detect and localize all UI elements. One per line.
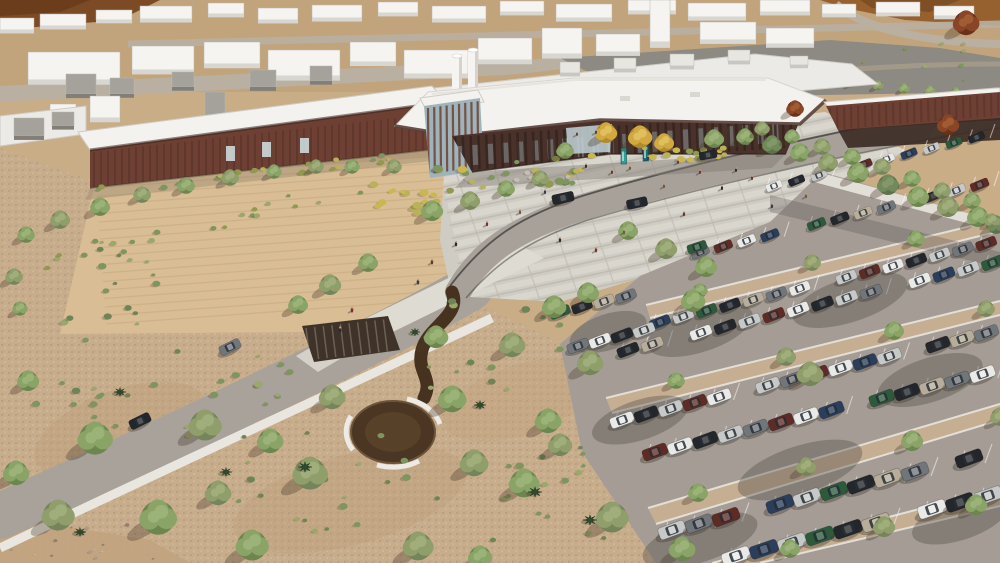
facade-panels [844, 107, 845, 129]
building-face [650, 42, 670, 48]
shrub [582, 464, 586, 467]
tree-highlight [801, 463, 807, 469]
building-block [478, 38, 532, 60]
tree-highlight [693, 489, 699, 495]
tree-highlight [466, 458, 475, 467]
shrub [102, 544, 105, 546]
shrub [923, 64, 928, 68]
rendering-viewport [0, 0, 1000, 563]
shrub [343, 496, 347, 499]
colonnade-columns [681, 121, 682, 155]
shrub [721, 152, 727, 156]
shrub [374, 203, 381, 208]
building-face [90, 118, 120, 122]
building-block [596, 34, 640, 52]
tree-highlight [390, 164, 395, 169]
building-face [312, 18, 362, 22]
shrub [263, 402, 268, 406]
colonnade-columns [525, 132, 526, 166]
circle-inner [365, 412, 421, 452]
tree-highlight [553, 441, 561, 449]
tree-highlight [363, 259, 369, 265]
shrub [506, 464, 512, 468]
person-head [629, 165, 631, 167]
tree-highlight [878, 523, 885, 530]
shrub [100, 241, 104, 244]
tree-highlight [758, 126, 763, 131]
shrub [125, 523, 129, 526]
shrub [150, 382, 158, 388]
shrub [402, 474, 411, 481]
tree-highlight [912, 193, 919, 200]
shrub [236, 499, 241, 503]
tree-highlight [348, 164, 353, 169]
facade-panels [872, 104, 873, 126]
tree-highlight [660, 245, 667, 252]
building-face [140, 19, 192, 23]
shrub [133, 311, 138, 315]
shrub [536, 511, 541, 515]
tree-highlight [817, 144, 823, 150]
shrub [124, 305, 131, 310]
shrub [378, 160, 385, 165]
tree-highlight [55, 216, 61, 222]
shrub [145, 260, 150, 263]
tree-highlight [9, 274, 15, 280]
shrub [160, 185, 167, 191]
shrub [92, 239, 98, 244]
building-block [310, 66, 332, 81]
colonnade-columns [502, 134, 503, 168]
building-block [312, 5, 362, 18]
building-face [172, 87, 194, 91]
shrub [358, 191, 363, 195]
shrub [401, 458, 409, 464]
shrub [963, 79, 967, 82]
tree-highlight [16, 306, 21, 311]
tree-highlight [49, 510, 60, 521]
tree-highlight [516, 478, 526, 488]
tree-highlight [937, 188, 943, 194]
building-face [258, 20, 298, 23]
shrub [294, 517, 300, 521]
person-head [519, 209, 521, 211]
shrub [59, 381, 65, 385]
facade-panels [956, 97, 957, 119]
shrub [554, 178, 564, 185]
agave-plant [298, 462, 312, 473]
tree-highlight [501, 186, 507, 192]
shrub [247, 476, 255, 482]
vent-side [475, 50, 478, 88]
shrub [413, 202, 422, 209]
tree-highlight [981, 306, 987, 312]
car-roof-highlight [706, 152, 711, 157]
building-face [96, 20, 132, 23]
tree-highlight [225, 175, 231, 181]
shrub [686, 149, 694, 155]
shrub [488, 175, 494, 180]
roof-equipment [690, 92, 700, 97]
vent-side [459, 56, 462, 90]
shrub [556, 346, 564, 352]
tree-highlight [137, 192, 143, 198]
building-face [560, 73, 580, 76]
tree-highlight [196, 420, 207, 431]
building-block [140, 6, 192, 19]
shrub [81, 253, 88, 258]
tree-highlight [823, 159, 829, 165]
facade-panels [865, 105, 866, 127]
person-head [699, 169, 701, 171]
facade-panels [837, 107, 838, 129]
tree-highlight [429, 333, 437, 341]
building-block [14, 118, 44, 136]
building-face [876, 13, 920, 16]
tree-highlight [901, 87, 905, 91]
colonnade-columns [478, 135, 479, 169]
building-face [790, 65, 808, 68]
building-face [766, 44, 814, 48]
building-face [40, 26, 86, 29]
tree-highlight [465, 197, 471, 203]
shrub [252, 207, 257, 211]
building-block [96, 10, 132, 20]
person-head [623, 229, 625, 231]
shrub [66, 315, 73, 320]
building-block [52, 112, 74, 126]
building-block [650, 0, 670, 42]
shrub [175, 349, 181, 353]
tree-highlight [633, 133, 641, 141]
facade-panels [963, 97, 964, 119]
building-face [14, 136, 44, 140]
shrub [371, 158, 376, 162]
person-head [417, 279, 419, 281]
tree-highlight [473, 553, 481, 561]
facade-panels [900, 102, 901, 124]
shrub [514, 178, 520, 182]
shrub [92, 415, 98, 419]
shrub [333, 158, 339, 162]
building-face [478, 60, 532, 64]
building-face [596, 52, 640, 56]
building-face [310, 81, 332, 85]
building-block [542, 28, 582, 54]
tree-highlight [942, 203, 949, 210]
building-face [0, 30, 34, 33]
shrub [254, 381, 263, 387]
banner-graphic [622, 151, 624, 161]
person-head [663, 183, 665, 185]
building-face [378, 13, 418, 16]
tree-highlight [988, 218, 993, 223]
shrub [541, 482, 548, 487]
facade-panels [879, 104, 880, 126]
shrub [502, 171, 509, 177]
shrub [242, 435, 247, 439]
building-block [110, 78, 134, 94]
tree-highlight [95, 203, 101, 209]
shrub [152, 558, 154, 560]
facade-panels [984, 95, 985, 117]
building-block [790, 56, 808, 65]
facade-panels [991, 94, 992, 116]
shrub [588, 153, 596, 159]
tree-highlight [312, 164, 317, 169]
tree-highlight [22, 377, 29, 384]
architectural-aerial-rendering [0, 0, 1000, 563]
tree-highlight [505, 340, 513, 348]
shrub [469, 179, 476, 184]
shrub [557, 322, 564, 327]
building-face [500, 12, 544, 15]
shrub [940, 42, 944, 45]
person-head [351, 306, 353, 308]
tree-highlight [583, 358, 591, 366]
shrub [377, 433, 384, 438]
wing-windows [300, 138, 309, 153]
tree-highlight [927, 89, 931, 93]
shrub [427, 365, 431, 368]
agave-plant [74, 528, 86, 537]
tree-highlight [325, 392, 333, 400]
circle-inner [365, 412, 421, 452]
shrub [720, 146, 727, 151]
shrub [305, 431, 310, 435]
colonnade-columns [486, 135, 487, 169]
shrub [121, 249, 127, 254]
tree-highlight [959, 18, 967, 26]
person-head [721, 185, 723, 187]
scene-root [0, 0, 1000, 563]
shrub [90, 401, 98, 407]
facade-panels [928, 100, 929, 122]
colonnade-columns [494, 134, 495, 168]
shrub [430, 192, 437, 197]
shrub [663, 152, 671, 158]
shrub [251, 168, 258, 173]
tree-highlight [942, 121, 949, 128]
colonnade-columns [471, 136, 472, 170]
shrub [10, 549, 13, 551]
shrub [354, 522, 361, 527]
shrub [210, 392, 218, 398]
building-face [614, 69, 636, 72]
shrub [97, 247, 104, 252]
building-block [66, 74, 96, 94]
glass-mullions [440, 106, 441, 172]
shrub [96, 394, 103, 399]
shrub [464, 177, 469, 181]
tree-highlight [882, 181, 889, 188]
shrub [524, 171, 530, 175]
shrub [488, 379, 496, 385]
shrub [488, 364, 496, 370]
roof-equipment [620, 96, 630, 101]
facade-panels [886, 103, 887, 125]
tree-highlight [686, 297, 694, 305]
shrub [32, 401, 40, 407]
building-block [560, 62, 580, 73]
shrub [286, 194, 290, 197]
shrub [335, 165, 340, 169]
tree-highlight [181, 183, 187, 189]
building-block [250, 70, 276, 87]
tree-highlight [293, 301, 299, 307]
shrub [545, 514, 551, 518]
building-face [700, 40, 756, 44]
wing-windows [262, 142, 271, 157]
building-block [204, 42, 260, 64]
wing-windows [226, 146, 235, 161]
shrub [254, 213, 260, 218]
shrub [293, 204, 298, 208]
shrub [98, 263, 106, 269]
shrub [100, 551, 103, 553]
person-head [683, 211, 685, 213]
building-block [378, 2, 418, 13]
tree-highlight [675, 544, 683, 552]
tree-highlight [781, 353, 787, 359]
tree-highlight [263, 436, 271, 444]
shrub [458, 166, 468, 173]
shrub [385, 480, 390, 484]
shrub [103, 288, 110, 293]
building-face [204, 64, 260, 68]
shrub [54, 539, 58, 542]
shrub [151, 273, 155, 276]
tree-highlight [148, 511, 160, 523]
storefront-glass [505, 143, 506, 163]
tree-highlight [877, 164, 883, 170]
person-head [611, 169, 613, 171]
colonnade-columns [541, 131, 542, 165]
facade-panels [893, 103, 894, 125]
person-head [647, 155, 649, 157]
shrub [576, 470, 583, 475]
shrub [240, 213, 246, 217]
tree-highlight [603, 512, 614, 523]
facade-panels [970, 96, 971, 118]
facade-panels [851, 106, 852, 128]
tree-highlight [788, 134, 793, 139]
agave-plant [474, 401, 486, 410]
tree-highlight [324, 281, 331, 288]
shrub [687, 157, 694, 162]
building-face [822, 14, 856, 17]
building-block [258, 8, 298, 20]
shrub [480, 185, 486, 189]
building-block [0, 18, 34, 30]
building-block [90, 96, 120, 118]
person-head [735, 167, 737, 169]
shrub [316, 201, 321, 205]
shrub [561, 478, 569, 484]
tree-highlight [767, 141, 773, 147]
building-face [250, 87, 276, 91]
shrub [56, 253, 61, 257]
person-head [431, 259, 433, 261]
shrub [154, 230, 161, 235]
shrub [278, 362, 285, 367]
shrub [862, 61, 865, 64]
shrub [515, 463, 524, 470]
building-block [688, 3, 746, 17]
tree-highlight [785, 545, 791, 551]
shrub [72, 388, 81, 394]
shrub [959, 64, 964, 68]
storefront-glass [475, 145, 476, 165]
facade-panels [907, 101, 908, 123]
tree-highlight [243, 540, 254, 551]
tree-highlight [560, 148, 566, 154]
shrub [50, 555, 53, 557]
glass-mullions [434, 107, 435, 173]
tree-highlight [852, 169, 859, 176]
shrub [379, 153, 385, 158]
shrub [504, 387, 509, 391]
shrub [569, 181, 575, 186]
glass-mullions [447, 105, 448, 171]
shrub [419, 189, 428, 196]
shrub [82, 338, 88, 343]
shrub [601, 536, 606, 540]
shrub [113, 282, 117, 285]
facade-panels [935, 99, 936, 121]
agave-plant [220, 468, 232, 477]
person-head [805, 193, 807, 195]
building-block [876, 2, 920, 13]
shrub [356, 462, 361, 466]
shrub [961, 49, 966, 53]
tree-highlight [211, 488, 219, 496]
tree-highlight [582, 289, 589, 296]
building-block [208, 3, 244, 14]
person-head [585, 163, 587, 165]
shrub [148, 238, 155, 243]
shrub [125, 393, 130, 397]
building-block [614, 58, 636, 69]
shrub [94, 557, 98, 560]
building-face [688, 17, 746, 21]
tree-highlight [270, 169, 275, 174]
shrub [70, 527, 72, 529]
shrub [260, 167, 266, 171]
shrub [128, 258, 133, 262]
building-block [432, 6, 486, 19]
tree-highlight [9, 468, 17, 476]
building-block [132, 46, 194, 70]
shrub [256, 355, 260, 358]
tree-highlight [426, 207, 433, 214]
shrub [325, 527, 329, 530]
facade-panels [858, 106, 859, 128]
shrub [104, 313, 112, 319]
person-head [595, 129, 597, 131]
shrub [400, 190, 406, 194]
shrub [961, 42, 966, 45]
shrub [339, 503, 348, 509]
shrub [580, 452, 585, 456]
shrub [85, 527, 89, 530]
tree-highlight [790, 106, 796, 112]
tree-highlight [547, 303, 555, 311]
person-head [339, 326, 341, 328]
vent-cap [452, 54, 462, 58]
shrub [246, 461, 250, 464]
shrub [490, 538, 496, 543]
